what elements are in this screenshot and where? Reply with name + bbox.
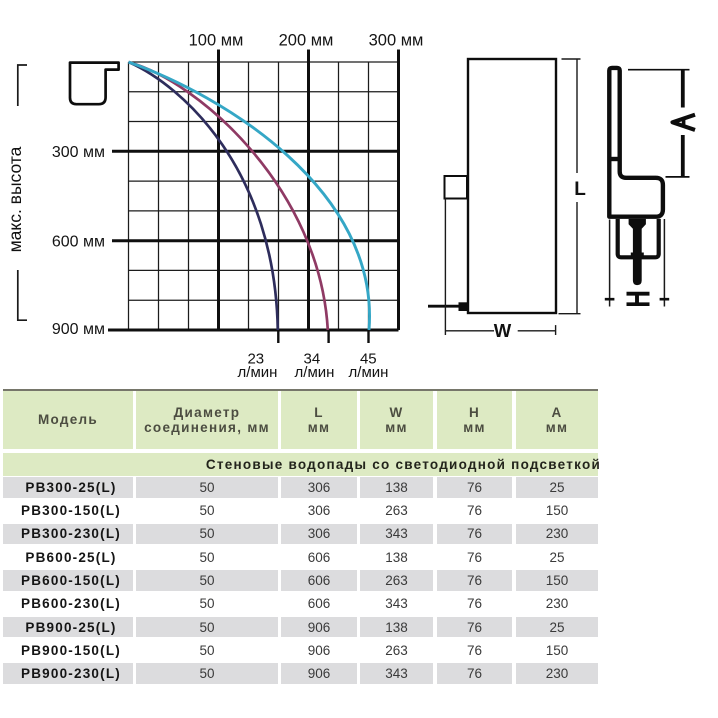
svg-text:100 мм: 100 мм	[189, 32, 244, 50]
svg-text:300 мм: 300 мм	[369, 32, 424, 50]
svg-text:макс. высота: макс. высота	[5, 146, 25, 252]
svg-text:W: W	[494, 320, 512, 341]
svg-text:900 мм: 900 мм	[52, 321, 105, 338]
svg-text:600 мм: 600 мм	[52, 233, 105, 250]
svg-text:300 мм: 300 мм	[52, 144, 105, 161]
svg-text:200 мм: 200 мм	[279, 32, 334, 50]
svg-text:л/мин: л/мин	[238, 364, 278, 381]
svg-text:L: L	[574, 179, 586, 200]
svg-text:л/мин: л/мин	[349, 364, 389, 381]
svg-text:л/мин: л/мин	[295, 364, 335, 381]
